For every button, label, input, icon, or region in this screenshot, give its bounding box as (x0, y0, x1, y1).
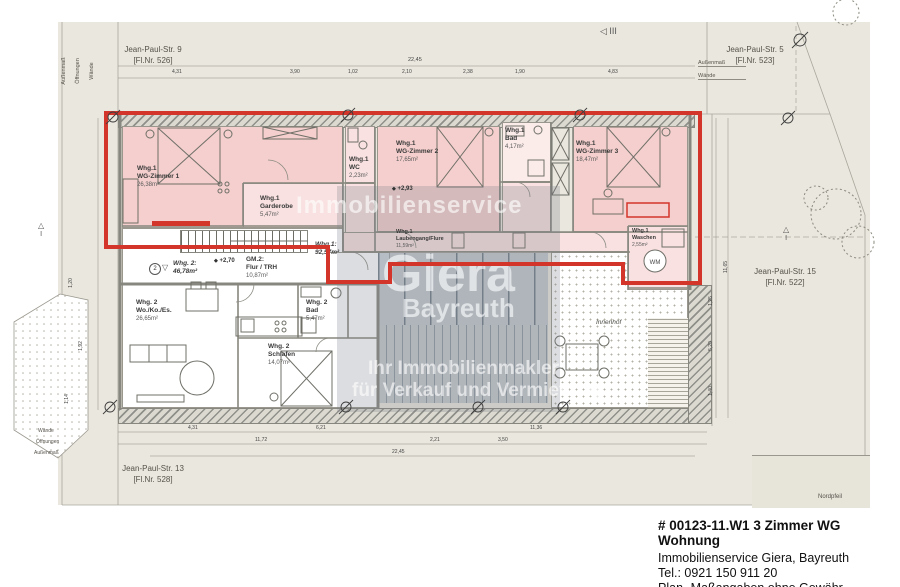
dim-top-4: 2,10 (402, 69, 412, 75)
triangle-up-icon: △ (38, 222, 44, 231)
level-diamond-icon: ◆ (214, 258, 218, 264)
label-wohnen-whg2: Whg. 2Wo./Ko./Es.26,65m² (136, 299, 172, 324)
caption-disclaimer: Plan- Maßangaben ohne Gewähr (658, 581, 900, 587)
deck-louvers (648, 318, 688, 408)
level-marker-hall: ◆ +2,70 (214, 258, 235, 264)
dim-bottom-r1-2: 6,21 (316, 425, 326, 431)
dim-left-2: 1,92 (78, 341, 84, 351)
label-bad-whg2: Whg. 2Bad5,47m² (306, 299, 327, 324)
parcel-marker-left: △ I (38, 222, 44, 238)
margin-aussenmass-topright: Außenmaß (698, 60, 746, 67)
watermark-tagline-1: Ihr Immobilienmakler (368, 358, 559, 380)
label-wg-zimmer2: Whg.1WG-Zimmer 217,65m² (396, 140, 438, 165)
margin-waende-topleft: Wände (89, 51, 95, 91)
dim-bottom-r2-1: 11,72 (255, 437, 267, 443)
roman-one-label: I (38, 231, 44, 239)
label-garderobe: Whg.1Garderobe5,47m² (260, 195, 293, 220)
level-value-hall: +2,70 (220, 258, 235, 264)
caption-block: # 00123-11.W1 3 Zimmer WG Wohnung Immobi… (658, 518, 900, 587)
staircase (180, 230, 308, 253)
unit2-triangle-icon: ▽ (162, 264, 168, 272)
dim-bottom-r2-3: 3,50 (498, 437, 508, 443)
label-whg1-total: Whg.1:92,57m² (315, 241, 339, 258)
dim-left-3: 1,14 (64, 394, 70, 404)
dim-bottom-total: 22,45 (392, 449, 405, 455)
dim-right-3: 1,40 (708, 386, 714, 396)
label-bad-whg1: Whg.1Bad4,17m² (505, 127, 525, 152)
watermark-tagline-2: für Verkauf und Vermietung (352, 380, 600, 402)
dim-right-2: 5,20 (708, 341, 714, 351)
floor-plan-sheet: Immobilienservice Giera Bayreuth Ihr Imm… (0, 0, 900, 587)
street-label-jps15: Jean-Paul-Str. 15[Fl.Nr. 522] (745, 266, 825, 288)
dim-right-total: 11,65 (723, 261, 729, 273)
dim-right-1: 1,25 (708, 296, 714, 306)
dim-top-6: 1,90 (515, 69, 525, 75)
watermark-bayreuth: Bayreuth (402, 293, 515, 324)
caption-phone: Tel.: 0921 150 911 20 (658, 566, 900, 580)
caption-company: Immobilienservice Giera, Bayreuth (658, 551, 900, 565)
dim-bottom-r2-2: 2,21 (430, 437, 440, 443)
dim-bottom-r1-1: 4,31 (188, 425, 198, 431)
label-whg2-total: Whg. 2:46,78m² (173, 260, 197, 277)
unit2-circle-marker: 2 (149, 263, 161, 275)
margin-oeffnungen-bottomleft: Öffnungen (36, 439, 59, 445)
label-innenhof: Innenhof (596, 319, 621, 326)
margin-aussenmass-topleft: Außenmaß (61, 51, 67, 91)
dim-bottom-r1-3: 11,36 (530, 425, 542, 431)
level-marker-corridor: ◆ +2,93 (392, 186, 413, 192)
dim-top-1: 4,31 (172, 69, 182, 75)
dim-top-2: 3,90 (290, 69, 300, 75)
section-marker: ◁ III (600, 27, 617, 36)
watermark-immobilienservice: Immobilienservice (296, 192, 522, 220)
north-arrow-box (752, 455, 870, 508)
label-waschen: Whg.1Waschen2,55m² (632, 228, 656, 249)
dim-top-3: 1,02 (348, 69, 358, 75)
label-gm2: GM.2:Flur / TRH10,87m² (246, 256, 277, 281)
dim-top-total: 22,45 (408, 57, 422, 63)
level-value-corridor: +2,93 (398, 186, 413, 192)
margin-waende-bottomleft: Wände (38, 428, 54, 434)
dim-top-5: 2,38 (463, 69, 473, 75)
roman-one-label: I (783, 235, 789, 243)
caption-title: # 00123-11.W1 3 Zimmer WG Wohnung (658, 518, 900, 548)
street-label-jps9: Jean-Paul-Str. 9[Fl.Nr. 526] (113, 44, 193, 66)
level-diamond-icon: ◆ (392, 186, 396, 192)
dim-left-1: 1,20 (68, 278, 74, 288)
label-wg-zimmer3: Whg.1WG-Zimmer 318,47m² (576, 140, 618, 165)
dim-top-7: 4,83 (608, 69, 618, 75)
margin-aussenmass-bottomleft: Außenmaß (34, 450, 59, 456)
parcel-marker-right: △ I (783, 226, 789, 242)
north-arrow-label: Nordpfeil (818, 494, 842, 500)
label-schlafen-whg2: Whg. 2Schlafen14,07m² (268, 343, 295, 368)
label-wc: Whg.1WC2,23m² (349, 156, 369, 181)
triangle-up-icon: △ (783, 226, 789, 235)
margin-oeffnungen-topleft: Öffnungen (75, 51, 81, 91)
label-wg-zimmer1: Whg.1WG-Zimmer 126,38m² (137, 165, 179, 190)
street-label-jps13: Jean-Paul-Str. 13[Fl.Nr. 528] (113, 463, 193, 485)
label-laubengang: Whg.1Laubengang/Flure11,59m² (396, 229, 444, 250)
margin-waende-topright: Wände (698, 73, 746, 80)
